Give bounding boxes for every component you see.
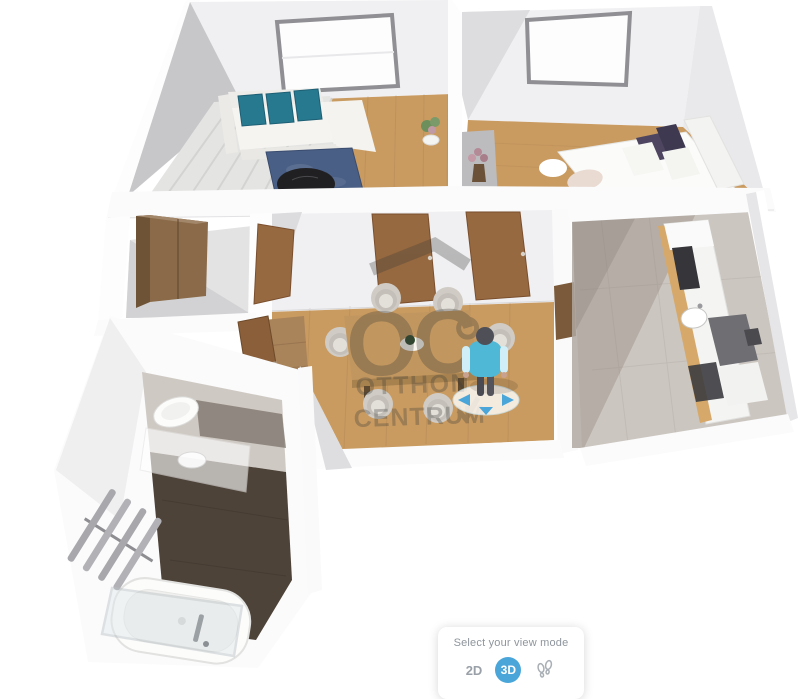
wardrobe[interactable] bbox=[136, 215, 208, 308]
pillow bbox=[294, 89, 322, 121]
walk-mode-button[interactable] bbox=[534, 659, 556, 681]
wardrobe-side bbox=[136, 215, 150, 308]
bedroom-divider-wall bbox=[448, 0, 462, 194]
flower bbox=[474, 148, 482, 156]
avatar-hand bbox=[501, 372, 507, 378]
bedroom[interactable] bbox=[448, 0, 778, 198]
bathroom[interactable] bbox=[54, 316, 322, 668]
avatar-arm bbox=[462, 346, 470, 373]
plant-leaves bbox=[430, 117, 440, 127]
flower bbox=[468, 154, 476, 162]
view-3d-button[interactable]: 3D bbox=[495, 657, 521, 683]
faucet bbox=[698, 304, 703, 309]
view-2d-button[interactable]: 2D bbox=[466, 663, 483, 678]
closet-room[interactable] bbox=[94, 213, 268, 336]
door-handle bbox=[428, 256, 432, 260]
door-right[interactable] bbox=[466, 212, 530, 300]
door-left[interactable] bbox=[254, 224, 294, 304]
pillow bbox=[238, 94, 266, 126]
flower-vase bbox=[472, 164, 486, 182]
plant-flowers bbox=[428, 126, 436, 134]
kitchen[interactable] bbox=[566, 190, 800, 466]
view-mode-panel: Select your view mode 2D 3D bbox=[438, 627, 584, 699]
avatar-arm bbox=[500, 346, 508, 373]
bed-sheet bbox=[539, 159, 567, 177]
pillow bbox=[266, 92, 294, 124]
watermark-line1: OTTHON bbox=[355, 369, 470, 401]
avatar-head bbox=[476, 327, 494, 345]
tall-cabinet bbox=[664, 220, 714, 250]
avatar-hand bbox=[463, 372, 469, 378]
living-room[interactable] bbox=[112, 0, 452, 200]
plant-pot bbox=[423, 135, 439, 145]
avatar-torso bbox=[468, 341, 502, 377]
view-mode-title: Select your view mode bbox=[444, 637, 578, 649]
view-mode-options: 2D 3D bbox=[444, 657, 578, 683]
wardrobe-front bbox=[150, 215, 208, 302]
washbasin bbox=[178, 452, 206, 468]
flower bbox=[480, 154, 488, 162]
floorplan-scene[interactable]: OC OTTHON CENTRUM bbox=[0, 0, 800, 670]
bedroom-window[interactable] bbox=[527, 13, 630, 85]
footsteps-icon bbox=[534, 659, 556, 681]
closet-left-wall bbox=[98, 216, 130, 322]
door-handle bbox=[521, 252, 525, 256]
